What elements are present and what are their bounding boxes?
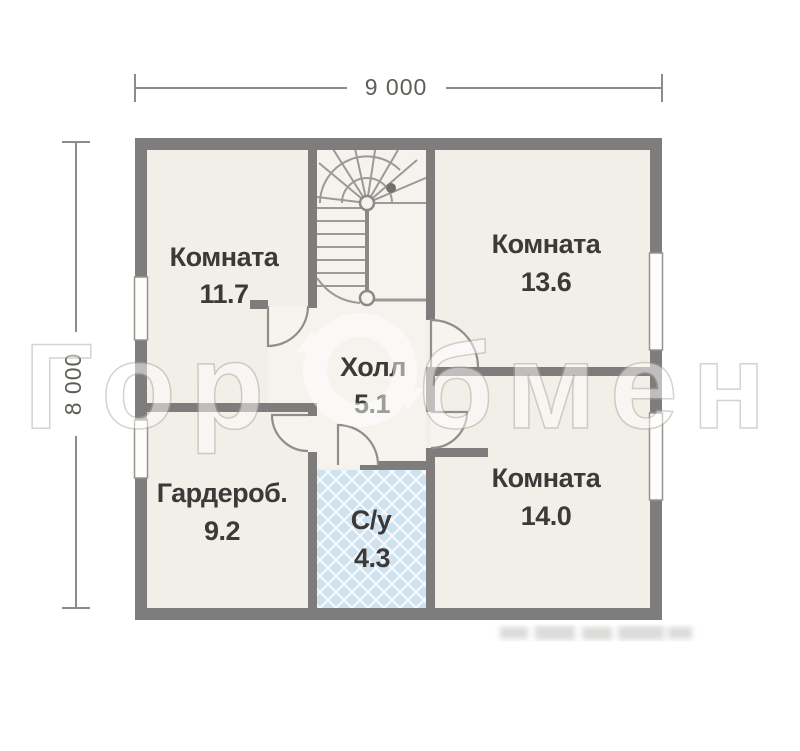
stair-newel-bottom bbox=[360, 291, 374, 305]
stair-newel-top bbox=[360, 196, 374, 210]
floor-plan: 9 000 8 000 Комната 11.7 Комната 13.6 Хо… bbox=[0, 0, 800, 751]
room-label-wardrobe: Гардероб. bbox=[157, 478, 288, 508]
tile-pattern bbox=[317, 470, 426, 608]
wall-bathroom-left bbox=[308, 452, 317, 608]
watermark-text-left: Гор bbox=[24, 318, 278, 454]
room-area-room136: 13.6 bbox=[521, 267, 572, 297]
floor-plan-page: 9 000 8 000 Комната 11.7 Комната 13.6 Хо… bbox=[0, 0, 800, 751]
stair-post-dot bbox=[386, 183, 396, 193]
room-area-bathroom: 4.3 bbox=[354, 543, 391, 573]
room-label-bathroom: С/у bbox=[351, 505, 392, 535]
wall-stairwell-left bbox=[308, 150, 317, 308]
wall-outer-bottom bbox=[135, 608, 662, 620]
wall-bathroom-right bbox=[426, 448, 435, 608]
room-label-room136: Комната bbox=[492, 229, 602, 259]
wall-stairwell-right bbox=[426, 150, 435, 320]
room-area-wardrobe: 9.2 bbox=[204, 516, 240, 546]
wall-outer-top bbox=[135, 138, 662, 150]
bathroom-tile bbox=[317, 470, 426, 608]
dimension-top: 9 000 bbox=[135, 74, 662, 102]
watermark-text-right: бмен bbox=[418, 318, 780, 454]
wall-stub-hall bbox=[250, 300, 268, 309]
dimension-width-label: 9 000 bbox=[365, 74, 428, 100]
room-area-room117: 11.7 bbox=[199, 279, 248, 309]
bottom-watermark-blur bbox=[500, 626, 692, 640]
room-area-room140: 14.0 bbox=[521, 501, 572, 531]
room-label-room117: Комната bbox=[170, 242, 280, 272]
room-label-room140: Комната bbox=[492, 463, 602, 493]
